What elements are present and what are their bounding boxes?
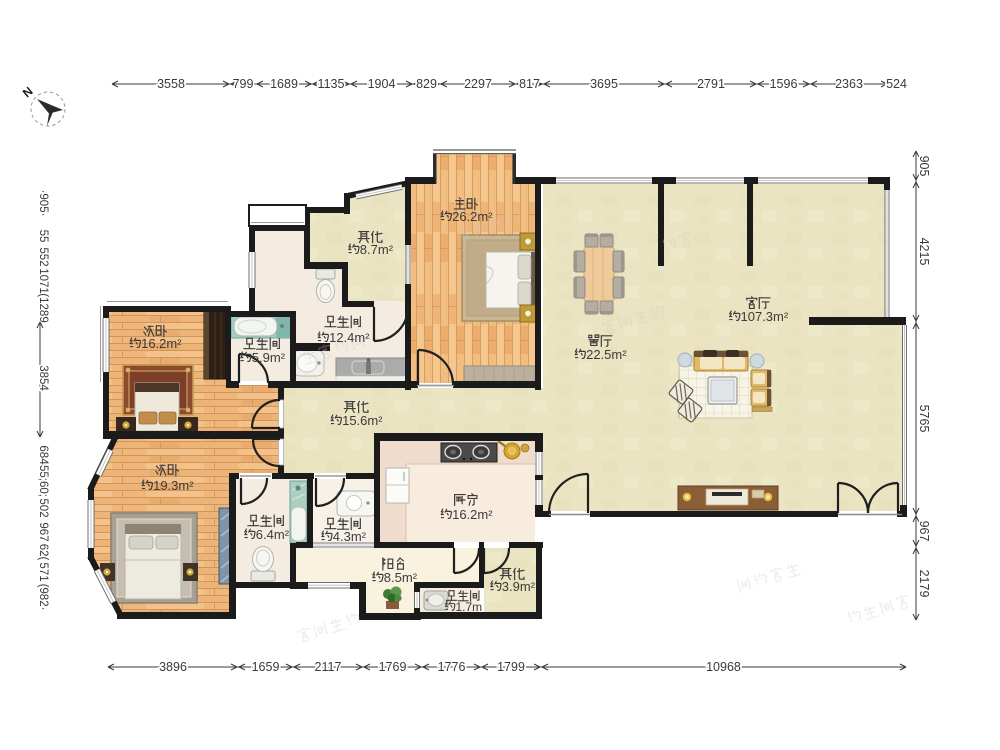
svg-text:26.2m²: 26.2m² bbox=[452, 209, 493, 224]
svg-text:967: 967 bbox=[917, 521, 931, 542]
svg-text:107.3m²: 107.3m² bbox=[741, 309, 789, 324]
svg-text:16.2m²: 16.2m² bbox=[452, 507, 493, 522]
svg-text:55;: 55; bbox=[37, 465, 49, 481]
svg-text:1071: 1071 bbox=[37, 268, 49, 294]
svg-text:·905·: ·905· bbox=[37, 190, 49, 217]
svg-text:817: 817 bbox=[519, 77, 540, 91]
svg-text:8.7m²: 8.7m² bbox=[360, 242, 394, 257]
svg-text:967: 967 bbox=[37, 522, 49, 541]
svg-text:2179: 2179 bbox=[917, 570, 931, 598]
svg-text:1776: 1776 bbox=[438, 660, 466, 674]
svg-text:1596: 1596 bbox=[770, 77, 798, 91]
svg-text:22.5m²: 22.5m² bbox=[586, 347, 627, 362]
svg-text:8.5m²: 8.5m² bbox=[384, 570, 418, 585]
svg-text:2117: 2117 bbox=[315, 660, 342, 674]
svg-text:829: 829 bbox=[416, 77, 437, 91]
svg-text:1799: 1799 bbox=[497, 660, 525, 674]
svg-text:1904: 1904 bbox=[368, 77, 396, 91]
svg-text:15.6m²: 15.6m² bbox=[342, 413, 383, 428]
svg-text:2791: 2791 bbox=[697, 77, 725, 91]
svg-text:524: 524 bbox=[886, 77, 907, 91]
svg-text:1689: 1689 bbox=[270, 77, 298, 91]
svg-text:12.4m²: 12.4m² bbox=[329, 330, 370, 345]
svg-text:1135: 1135 bbox=[318, 77, 345, 91]
svg-text:2363: 2363 bbox=[835, 77, 863, 91]
svg-text:10968: 10968 bbox=[706, 660, 741, 674]
svg-text:62(: 62( bbox=[37, 544, 49, 561]
svg-text:(1289: (1289 bbox=[37, 293, 49, 322]
svg-text:905: 905 bbox=[917, 156, 931, 177]
svg-text:19.3m²: 19.3m² bbox=[153, 478, 194, 493]
svg-text:552: 552 bbox=[37, 247, 49, 266]
svg-text:571: 571 bbox=[37, 562, 49, 581]
svg-text:1769: 1769 bbox=[379, 660, 407, 674]
svg-text:16.2m²: 16.2m² bbox=[141, 336, 182, 351]
svg-text:55: 55 bbox=[37, 230, 49, 243]
svg-text:3695: 3695 bbox=[590, 77, 618, 91]
svg-text:2297: 2297 bbox=[464, 77, 492, 91]
svg-text:5765: 5765 bbox=[917, 405, 931, 433]
svg-text:4215: 4215 bbox=[917, 238, 931, 266]
svg-text:799: 799 bbox=[233, 77, 254, 91]
svg-text:3854: 3854 bbox=[37, 365, 49, 391]
svg-text:3558: 3558 bbox=[157, 77, 185, 91]
svg-text:684: 684 bbox=[37, 445, 49, 465]
svg-text:5.9m²: 5.9m² bbox=[252, 350, 286, 365]
svg-text:60;: 60; bbox=[37, 481, 49, 497]
svg-text:1.7m: 1.7m bbox=[456, 600, 483, 614]
svg-text:1659: 1659 bbox=[252, 660, 280, 674]
svg-text:502: 502 bbox=[37, 498, 49, 517]
svg-text:3.9m²: 3.9m² bbox=[502, 579, 536, 594]
svg-text:6.4m²: 6.4m² bbox=[256, 527, 290, 542]
svg-text:4.3m²: 4.3m² bbox=[333, 529, 367, 544]
svg-text:(982·: (982· bbox=[37, 584, 49, 611]
svg-text:3896: 3896 bbox=[159, 660, 187, 674]
